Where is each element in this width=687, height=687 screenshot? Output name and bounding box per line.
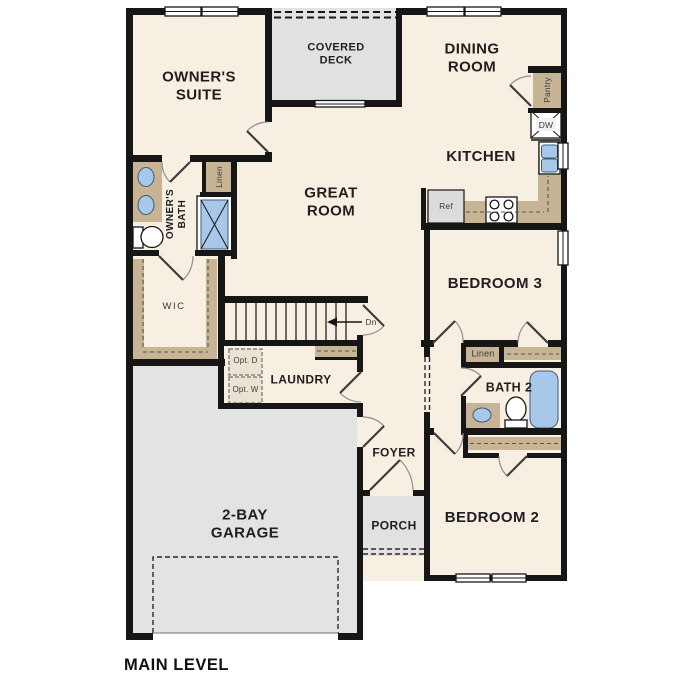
- stairs-down-label: Dn: [365, 317, 376, 327]
- refrigerator-label: Ref: [439, 201, 453, 211]
- deck-slider-door: [315, 101, 365, 108]
- bath2-label: BATH 2: [485, 380, 533, 395]
- kitchen-sink-fixture: [539, 142, 560, 174]
- bath2-sink: [473, 408, 491, 422]
- wic-shelf-left: [133, 259, 144, 359]
- level-title: MAIN LEVEL: [124, 655, 229, 675]
- bath2-toilet-bowl: [506, 397, 526, 421]
- hall-linen-label: Linen: [471, 349, 494, 360]
- foyer-label: FOYER: [354, 446, 434, 461]
- owners-bath-label: OWNER'S BATH: [165, 182, 189, 246]
- great-room-label: GREAT ROOM: [291, 185, 371, 222]
- garage-label: 2-BAY GARAGE: [195, 507, 295, 544]
- porch-label: PORCH: [354, 519, 434, 534]
- owners-suite-label: OWNER'S SUITE: [153, 69, 245, 106]
- bathtub-fixture: [530, 371, 558, 428]
- bath2-toilet-tank: [505, 420, 527, 428]
- stove-fixture: [486, 197, 517, 223]
- owners-shower: [197, 196, 232, 253]
- covered-deck-label: COVERED DECK: [296, 42, 376, 69]
- kitchen-window: [558, 143, 568, 169]
- owners-sink-1: [138, 168, 154, 187]
- wic-shelf-bottom: [133, 347, 217, 359]
- laundry-label: LAUNDRY: [251, 373, 351, 388]
- kitchen-label: KITCHEN: [421, 148, 541, 166]
- floorplan-page: OWNER'S SUITE COVERED DECK DINING ROOM K…: [0, 0, 687, 687]
- pantry-label: Pantry: [542, 68, 552, 112]
- floorplan-drawing: [0, 0, 687, 687]
- dishwasher-label: DW: [539, 120, 554, 130]
- dining-room-label: DINING ROOM: [426, 41, 518, 78]
- owners-toilet-bowl: [141, 227, 163, 248]
- bedroom2-label: BEDROOM 2: [427, 509, 557, 527]
- owners-sink-2: [138, 196, 154, 215]
- owners-suite-window: [165, 7, 238, 16]
- bedroom3-window: [558, 231, 568, 265]
- dining-room-window: [427, 7, 501, 16]
- bedroom3-label: BEDROOM 3: [430, 275, 560, 293]
- optional-dryer-label: Opt. D: [231, 356, 261, 366]
- garage-area-left: [133, 366, 218, 633]
- optional-washer-label: Opt. W: [231, 385, 261, 395]
- wic-label: WIC: [163, 301, 186, 313]
- owners-linen-label: Linen: [214, 157, 224, 197]
